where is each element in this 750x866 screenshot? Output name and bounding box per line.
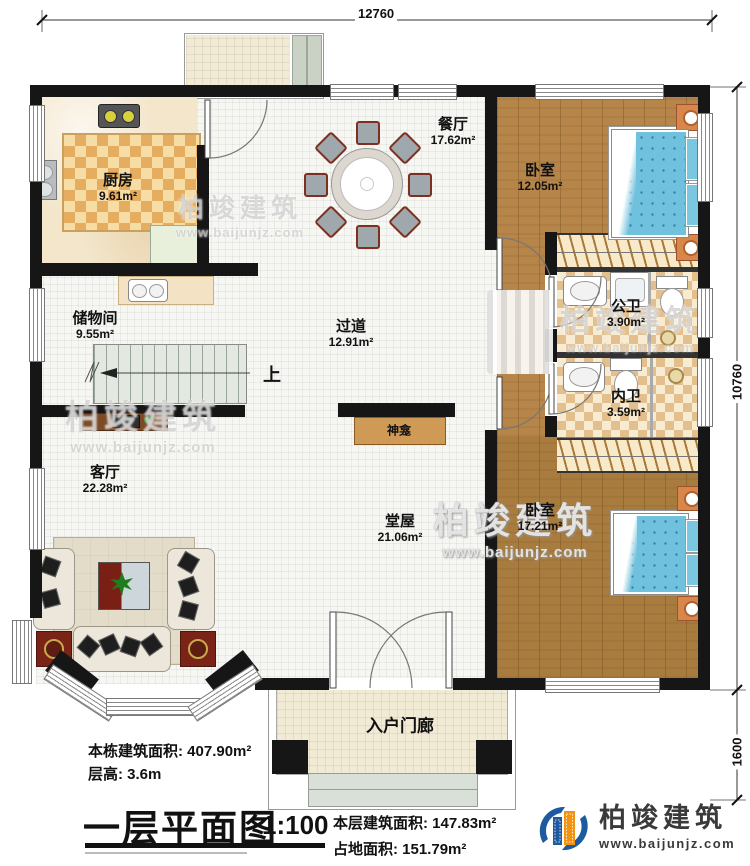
- room-area: 17.21m²: [518, 520, 563, 533]
- room-area: 9.61m²: [99, 190, 137, 203]
- room-label-storage: 储物间 9.55m²: [72, 311, 117, 341]
- room-name: 厨房: [99, 173, 137, 190]
- room-name: 内卫: [607, 389, 645, 406]
- window-bedroom1-top: [535, 84, 664, 100]
- laptop: [112, 415, 140, 428]
- porch-column: [272, 740, 308, 774]
- room-name: 过道: [329, 319, 374, 336]
- room-name: 公卫: [607, 299, 645, 316]
- floor-area-info: 本层建筑面积: 147.83m²: [333, 812, 496, 833]
- dim-right-lower: 1600: [730, 735, 745, 770]
- stairs-up-label: 上: [263, 361, 281, 387]
- floor-height-label: 层高:: [88, 766, 123, 783]
- floor-area-value: 147.83m²: [432, 815, 496, 832]
- wall-kitchen-right: [197, 145, 209, 263]
- end-table: [180, 631, 216, 667]
- room-area: 3.59m²: [607, 406, 645, 419]
- room-label-hallway: 过道 12.91m²: [329, 319, 374, 349]
- window-bath-public-right: [697, 288, 713, 338]
- brand-logo-icon: [535, 799, 593, 857]
- brand-name: 柏竣建筑: [599, 805, 735, 832]
- porch-column: [476, 740, 512, 774]
- bath-partition: [648, 272, 651, 352]
- window-dining-top: [330, 84, 394, 100]
- bath-private-shower: [668, 368, 684, 384]
- bath-private-sink: [563, 362, 605, 392]
- room-name: 餐厅: [431, 117, 476, 134]
- porch-label: 入户门廊: [366, 712, 434, 737]
- room-label-dining: 餐厅 17.62m²: [431, 117, 476, 147]
- floor-area-label: 本层建筑面积:: [333, 815, 428, 832]
- room-name: 储物间: [72, 311, 117, 328]
- room-name: 客厅: [83, 465, 128, 482]
- porch-step: [308, 789, 478, 807]
- wall-dining-bedroom1: [485, 97, 497, 250]
- window-living-left: [29, 468, 45, 550]
- wall-kitchen-bottom: [30, 263, 258, 276]
- bed1-blanket: [614, 132, 636, 235]
- window-bath-private-right: [697, 358, 713, 427]
- room-label-kitchen: 厨房 9.61m²: [99, 173, 137, 203]
- dining-chair: [356, 121, 380, 145]
- room-area: 9.55m²: [72, 328, 117, 341]
- dining-chair: [408, 173, 432, 197]
- desk-plant: [144, 416, 153, 424]
- room-label-living: 客厅 22.28m²: [83, 465, 128, 495]
- title-underline: [85, 843, 325, 848]
- wall-hall-bedroom2: [485, 430, 497, 678]
- total-area-info: 本栋建筑面积: 407.90m²: [88, 740, 251, 761]
- watermark-logo-block: [487, 290, 553, 374]
- dim-right: 10760: [730, 361, 745, 403]
- dining-chair: [356, 225, 380, 249]
- coffee-table: [98, 562, 150, 610]
- bath-public-shower: [660, 330, 676, 346]
- window-bedroom1-right: [697, 113, 713, 202]
- dining-chair: [304, 173, 328, 197]
- total-area-label: 本栋建筑面积:: [88, 743, 183, 760]
- room-area: 21.06m²: [378, 531, 423, 544]
- room-label-main-hall: 堂屋 21.06m²: [378, 514, 423, 544]
- room-name: 卧室: [518, 163, 563, 180]
- brand-logo: 柏竣建筑 www.baijunjz.com: [535, 798, 745, 858]
- room-name: 堂屋: [378, 514, 423, 531]
- room-area: 17.62m²: [431, 134, 476, 147]
- window-kitchen-left: [29, 105, 45, 182]
- wall-shrine: [338, 403, 455, 417]
- bed2-blanket: [616, 516, 637, 592]
- title-underline-thin: [85, 852, 247, 854]
- window-bedroom2-bottom: [545, 677, 660, 693]
- footprint-info: 占地面积: 151.79m²: [333, 838, 466, 859]
- window-storage-left: [29, 288, 45, 362]
- double-sink: [128, 279, 168, 302]
- footprint-label: 占地面积:: [333, 841, 398, 858]
- window-dining-top: [398, 84, 457, 100]
- plan-scale: 1:100: [262, 810, 329, 841]
- total-area-value: 407.90m²: [187, 743, 251, 760]
- entry-door-gap: [329, 678, 453, 690]
- shrine-label: 神龛: [387, 422, 411, 439]
- bath-public-sink: [563, 276, 607, 306]
- stove: [98, 104, 140, 128]
- dim-top: 12760: [355, 6, 397, 21]
- footprint-value: 151.79m²: [402, 841, 466, 858]
- floor-height-value: 3.6m: [127, 766, 161, 783]
- bath-partition: [650, 358, 653, 437]
- room-area: 22.28m²: [83, 482, 128, 495]
- bedroom2-closet: [557, 438, 698, 473]
- bay-window-left: [12, 620, 32, 684]
- room-label-bath-public: 公卫 3.90m²: [607, 299, 645, 329]
- bath-public-toilet-bowl: [660, 288, 684, 316]
- brand-url: www.baijunjz.com: [599, 836, 735, 851]
- room-name: 卧室: [518, 503, 563, 520]
- room-area: 12.05m²: [518, 180, 563, 193]
- bed1-mattress: [612, 130, 688, 237]
- room-label-bedroom2: 卧室 17.21m²: [518, 503, 563, 533]
- wall-bath-top: [557, 267, 698, 272]
- room-label-bath-private: 内卫 3.59m²: [607, 389, 645, 419]
- room-area: 3.90m²: [607, 316, 645, 329]
- room-label-bedroom1: 卧室 12.05m²: [518, 163, 563, 193]
- dining-table-center: [360, 177, 374, 191]
- floor-plan-page: 12760 10760 1600 厨房 9.61m² 餐厅 17.62m² 卧室…: [0, 0, 750, 866]
- floor-height-info: 层高: 3.6m: [88, 763, 161, 784]
- wall-bath-mid: [557, 352, 698, 358]
- bed2-mattress: [614, 514, 688, 594]
- staircase: [93, 344, 247, 404]
- room-area: 12.91m²: [329, 336, 374, 349]
